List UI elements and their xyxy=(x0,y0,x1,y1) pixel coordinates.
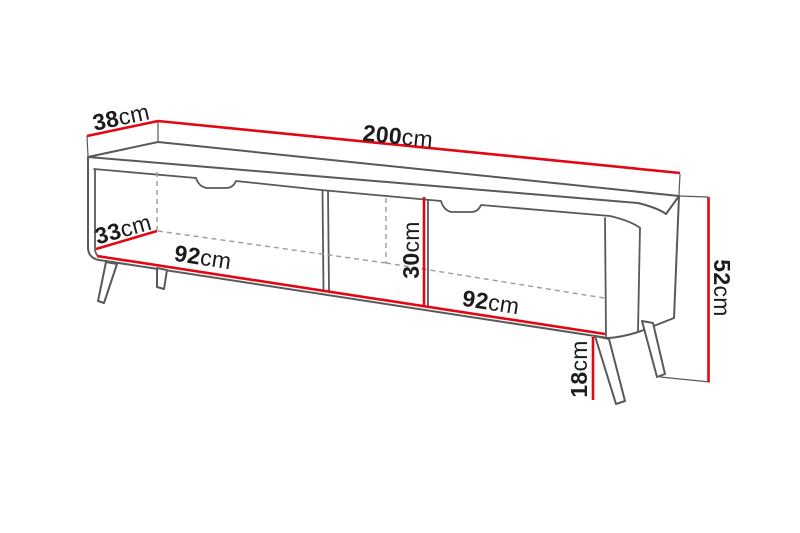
tv-stand-dimension-diagram: 38cm 200cm 33cm 92cm 30cm 92cm 52cm 18cm xyxy=(0,0,800,533)
svg-text:18cm: 18cm xyxy=(566,340,592,397)
svg-text:200cm: 200cm xyxy=(362,120,435,153)
diagram-stage: 38cm 200cm 33cm 92cm 30cm 92cm 52cm 18cm xyxy=(0,0,800,533)
leg-front-right xyxy=(595,336,625,404)
right-door-right-edge xyxy=(605,218,606,336)
tick-200-right xyxy=(679,174,680,195)
dim-label-height-open-shelf: 30cm xyxy=(398,221,424,278)
dim-label-height-legs: 18cm xyxy=(566,340,592,397)
svg-text:52cm: 52cm xyxy=(709,259,735,316)
dim-label-depth-top: 38cm xyxy=(90,98,152,135)
leg-rear-left xyxy=(157,268,167,289)
leg-front-left xyxy=(98,262,117,303)
middle-divider-front-left-line xyxy=(323,191,324,290)
floor-line-right xyxy=(660,377,710,382)
svg-text:30cm: 30cm xyxy=(398,221,424,278)
svg-text:38cm: 38cm xyxy=(90,98,152,135)
dim-label-width-total: 200cm xyxy=(362,120,435,153)
leg-rear-right xyxy=(642,321,665,377)
dim-label-height-total: 52cm xyxy=(709,259,735,316)
tick-52-top xyxy=(679,196,708,197)
tick-38-left xyxy=(87,136,88,156)
middle-divider-front-right-line xyxy=(328,191,329,291)
